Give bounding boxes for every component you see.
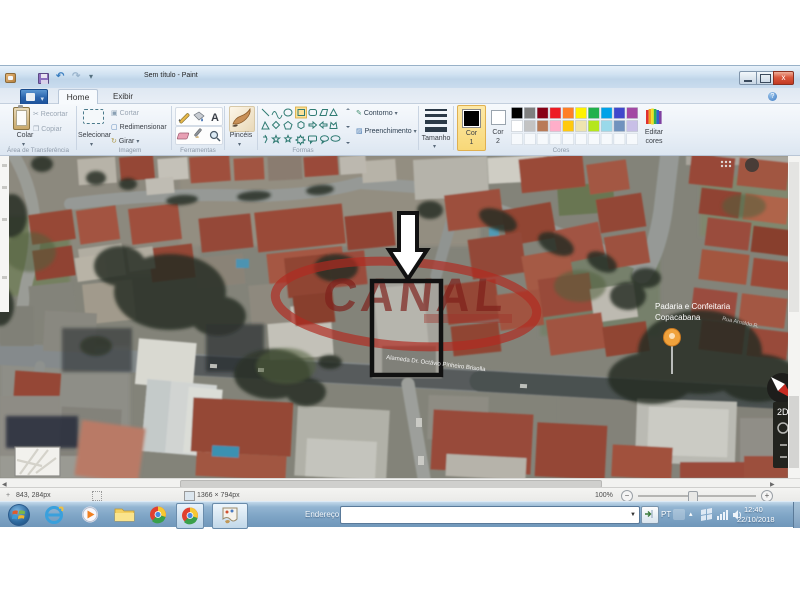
svg-text:CANAL: CANAL: [320, 268, 510, 321]
svg-text:Copacabana: Copacabana: [655, 313, 701, 322]
svg-text:2D: 2D: [777, 407, 789, 417]
svg-text:A: A: [211, 112, 219, 124]
svg-text:Padaria e Confeitaria: Padaria e Confeitaria: [655, 302, 731, 311]
